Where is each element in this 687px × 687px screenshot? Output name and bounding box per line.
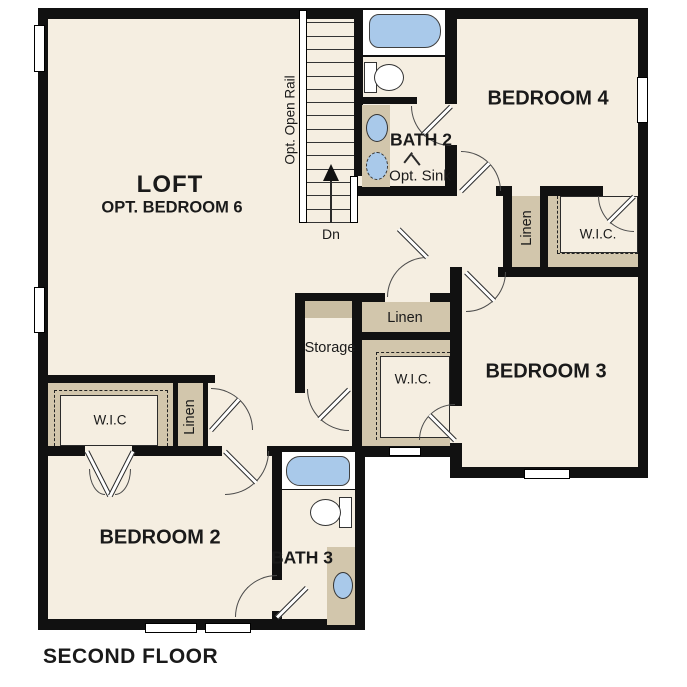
up-arrow-icon: [323, 164, 339, 181]
wall: [38, 446, 85, 456]
stair-tread: [307, 22, 354, 23]
closet-rod: [557, 253, 638, 254]
sink: [366, 114, 388, 142]
stair-divider: [330, 180, 332, 223]
wall: [450, 267, 462, 406]
wall: [352, 293, 362, 446]
closet-rod: [167, 390, 168, 446]
closet-rod: [54, 390, 55, 446]
stair-tread: [307, 129, 354, 130]
window: [145, 623, 197, 633]
bathtub: [286, 456, 350, 486]
stair-tread: [307, 76, 354, 77]
open-rail-label: Opt. Open Rail: [283, 75, 298, 164]
exterior-notch: [365, 457, 450, 467]
wall: [540, 186, 548, 267]
bedroom3-label: BEDROOM 3: [485, 361, 606, 384]
wic-bedroom2-label: W.I.C: [94, 413, 127, 428]
wall: [445, 8, 457, 104]
sink-optional: [366, 152, 388, 180]
loft-label: LOFT: [137, 171, 204, 199]
wall: [38, 375, 215, 383]
wall: [362, 293, 385, 302]
closet-rod: [376, 352, 377, 440]
toilet-bowl: [374, 64, 404, 91]
stair-rail: [299, 10, 307, 223]
storage-label: Storage: [305, 340, 356, 356]
bedroom2-label: BEDROOM 2: [99, 527, 220, 550]
wall: [295, 293, 305, 393]
floor-plan: LOFT OPT. BEDROOM 6 BEDROOM 4 BEDROOM 3 …: [0, 0, 687, 687]
wall: [355, 446, 365, 630]
bedroom4-label: BEDROOM 4: [487, 88, 608, 111]
linen-hall-label: Linen: [387, 310, 422, 326]
wall: [132, 446, 222, 456]
stair-tread: [307, 89, 354, 90]
storage-shelf: [305, 301, 352, 318]
stairs-down-label: Dn: [322, 226, 340, 242]
window: [205, 623, 251, 633]
linen-bedroom2-label: Linen: [182, 399, 198, 434]
stair-rail-post: [350, 176, 358, 223]
stair-tread: [307, 49, 354, 50]
wall: [503, 186, 512, 267]
wall: [362, 332, 450, 340]
window: [34, 25, 45, 72]
wall: [203, 383, 208, 446]
bathtub: [369, 14, 441, 48]
sink: [333, 572, 353, 599]
opt-sink-label: Opt. Sink: [389, 168, 451, 185]
window: [524, 469, 570, 479]
window: [637, 77, 648, 123]
wall: [498, 267, 648, 277]
closet-rod: [376, 352, 450, 353]
wic-bedroom3-label: W.I.C.: [395, 372, 432, 387]
loft-sublabel: OPT. BEDROOM 6: [101, 199, 242, 218]
wall: [354, 97, 417, 104]
page-title: SECOND FLOOR: [43, 645, 218, 669]
stair-tread: [307, 115, 354, 116]
bath2-label: BATH 2: [389, 130, 453, 151]
stair-tread: [307, 102, 354, 103]
stair-tread: [307, 142, 354, 143]
window: [34, 287, 45, 333]
window: [389, 447, 421, 456]
bath3-label: BATH 3: [270, 548, 334, 569]
closet-rod: [54, 390, 168, 391]
toilet-bowl: [310, 499, 341, 526]
wall: [430, 293, 450, 302]
closet-rod: [557, 196, 558, 253]
stair-tread: [307, 36, 354, 37]
wall: [358, 186, 448, 196]
linen-bedroom4-label: Linen: [519, 210, 535, 245]
stair-tread: [307, 155, 354, 156]
wic-bedroom4-label: W.I.C.: [580, 227, 617, 242]
wall: [548, 186, 603, 196]
wall: [38, 619, 365, 630]
stair-tread: [307, 62, 354, 63]
